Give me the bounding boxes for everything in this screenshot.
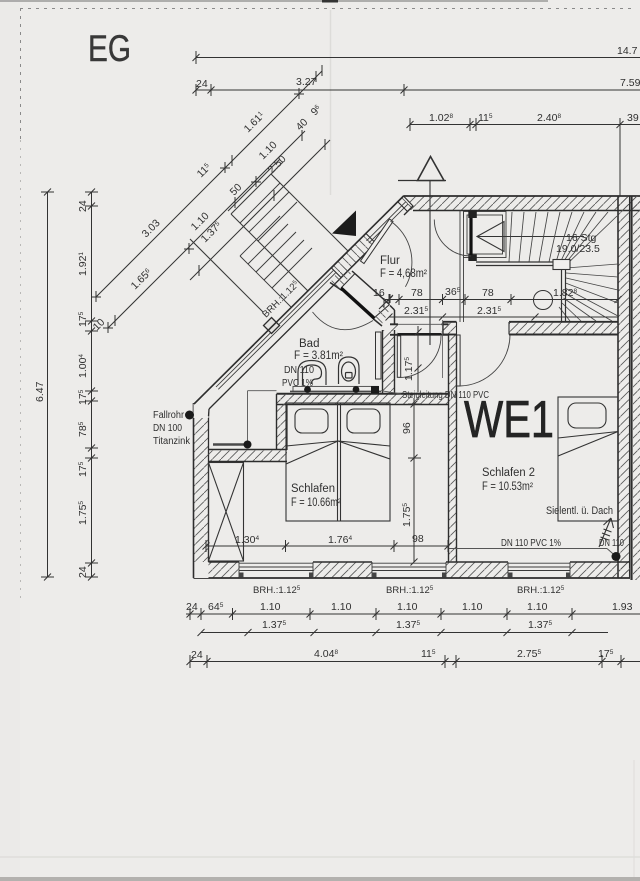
svg-text:24: 24 [196,78,208,90]
svg-text:14.7: 14.7 [617,45,638,57]
svg-text:78: 78 [482,287,494,299]
svg-text:DN 110: DN 110 [599,538,624,549]
svg-text:Flur: Flur [380,255,400,267]
svg-text:F = 10.53m²: F = 10.53m² [482,481,533,493]
svg-text:24: 24 [77,200,89,212]
svg-text:Steigleitung DN 110 PVC: Steigleitung DN 110 PVC [402,390,489,401]
svg-text:Schlafen: Schlafen [291,483,335,495]
svg-text:BRH.:1.125: BRH.:1.125 [386,585,434,596]
svg-text:F = 10.66m²: F = 10.66m² [291,497,341,509]
svg-text:1.93: 1.93 [612,601,633,613]
svg-text:39: 39 [627,112,639,124]
svg-text:24: 24 [186,601,198,613]
svg-text:6.47: 6.47 [34,381,46,402]
svg-text:1.10: 1.10 [527,601,548,613]
svg-text:DN 100: DN 100 [153,423,182,434]
svg-text:7.59: 7.59 [620,77,640,89]
svg-text:16: 16 [373,287,385,299]
svg-text:1.10: 1.10 [260,601,281,613]
svg-text:1.10: 1.10 [462,601,483,613]
svg-text:F = 3.81m²: F = 3.81m² [294,350,343,362]
svg-text:24: 24 [191,649,203,661]
svg-text:EG: EG [88,28,131,69]
svg-text:1.10: 1.10 [331,601,352,613]
svg-text:DN 110 PVC 1%: DN 110 PVC 1% [501,538,561,549]
svg-text:1.10: 1.10 [397,601,418,613]
svg-text:BRH.:1.125: BRH.:1.125 [253,585,301,596]
svg-text:BRH.:1.125: BRH.:1.125 [517,585,565,596]
svg-text:98: 98 [412,533,424,545]
svg-text:78: 78 [411,287,423,299]
svg-text:Bad: Bad [299,338,319,350]
svg-text:19.0/23.5: 19.0/23.5 [556,243,600,255]
svg-text:24: 24 [77,566,89,578]
svg-text:Fallrohr: Fallrohr [153,410,185,421]
svg-text:F = 4,68m²: F = 4,68m² [380,268,427,280]
svg-text:96: 96 [401,422,413,434]
svg-text:Schlafen 2: Schlafen 2 [482,467,535,479]
svg-text:Sielentl. ü. Dach: Sielentl. ü. Dach [546,505,613,517]
svg-text:Titanzink: Titanzink [153,436,191,447]
